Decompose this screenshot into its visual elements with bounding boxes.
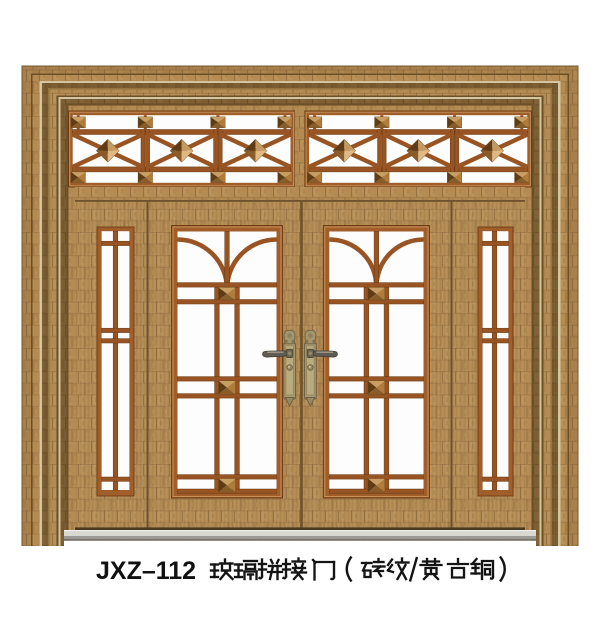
svg-text:JXZ–112: JXZ–112 — [96, 557, 196, 585]
